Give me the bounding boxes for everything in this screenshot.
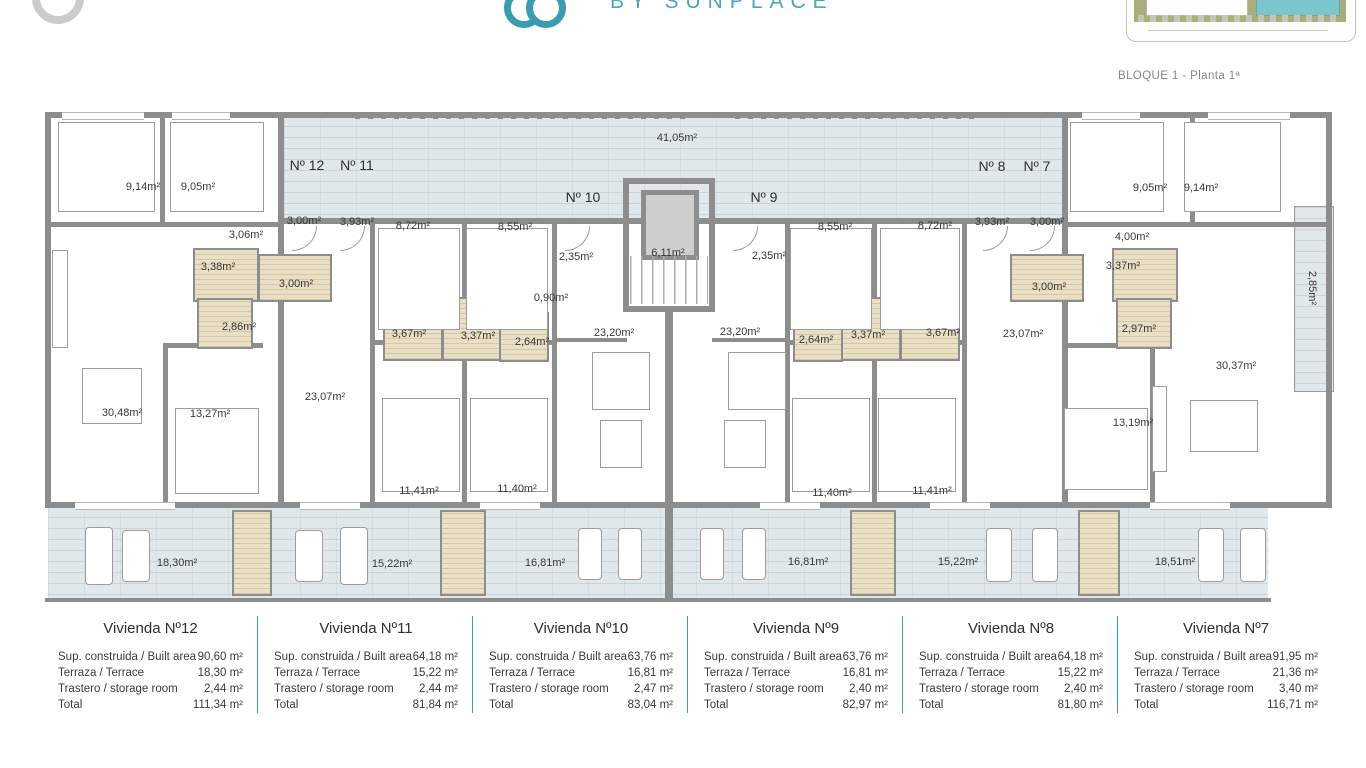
total-label: Total [704, 697, 728, 713]
storage-label: Trastero / storage room [704, 681, 824, 697]
terrace-label: Terraza / Terrace [919, 665, 1005, 681]
room-area-label: 18,51m² [1155, 556, 1195, 568]
table-row: Terraza / Terrace 21,36 m² [1134, 665, 1318, 681]
room-area-label: 13,27m² [190, 408, 230, 420]
sun-lounger [986, 528, 1012, 582]
built-area-label: Sup. construida / Built area [489, 649, 627, 665]
storage-value: 2,40 m² [849, 681, 888, 697]
storage-value: 2,44 m² [204, 681, 243, 697]
unit-summary-column: Vivienda Nº11 Sup. construida / Built ar… [257, 616, 472, 713]
door-arc [340, 226, 365, 251]
wall [45, 222, 278, 227]
room-area-label: 6,11m² [651, 247, 684, 259]
wall [1062, 222, 1332, 227]
sun-lounger [1240, 528, 1266, 582]
table-row: Trastero / storage room 2,44 m² [58, 681, 243, 697]
sun-lounger [618, 528, 642, 580]
room-area-label: 4,00m² [1115, 231, 1149, 243]
unit-number-label: Nº 12 [290, 157, 325, 173]
floorplan-page: BY SUNPLACE BLOQUE 1 - Planta 1ª [0, 0, 1366, 768]
wall [1326, 112, 1332, 508]
terrace-label: Terraza / Terrace [274, 665, 360, 681]
unit-summary-column: Vivienda Nº9 Sup. construida / Built are… [687, 616, 902, 713]
built-area-value: 63,76 m² [628, 649, 673, 665]
sofa [592, 352, 650, 410]
stairs [630, 256, 708, 304]
stair-wall [623, 178, 629, 312]
total-label: Total [919, 697, 943, 713]
terrace-label: Terraza / Terrace [704, 665, 790, 681]
room-area-label: 3,00m² [1030, 216, 1064, 228]
room-area-label: 11,40m² [497, 483, 537, 495]
sun-lounger [1032, 528, 1058, 582]
wall [370, 218, 375, 502]
bed [1070, 122, 1164, 212]
unit-summary-title: Vivienda Nº10 [489, 620, 673, 637]
storage-value: 2,40 m² [1064, 681, 1103, 697]
window [62, 112, 144, 120]
total-value: 82,97 m² [843, 697, 888, 713]
window [1082, 112, 1140, 120]
built-area-label: Sup. construida / Built area [274, 649, 412, 665]
room-area-label: 3,67m² [926, 327, 960, 339]
wall [160, 112, 165, 224]
bathroom [1112, 248, 1178, 302]
table-row: Sup. construida / Built area 63,76 m² [489, 649, 673, 665]
window [300, 502, 360, 510]
table-row: Terraza / Terrace 15,22 m² [274, 665, 458, 681]
room-area-label: 3,37m² [851, 329, 885, 341]
bed [382, 398, 460, 492]
sofa [728, 352, 786, 410]
table-row: Sup. construida / Built area 91,95 m² [1134, 649, 1318, 665]
unit-summary-title: Vivienda Nº7 [1134, 620, 1318, 637]
room-area-label: 3,67m² [392, 328, 426, 340]
sun-lounger [742, 528, 766, 580]
table-row: Total 81,84 m² [274, 697, 458, 713]
door-arc [565, 226, 590, 251]
unit-summary-table: Vivienda Nº12 Sup. construida / Built ar… [42, 616, 1332, 713]
room-area-label: 9,05m² [181, 181, 215, 193]
table-row: Total 111,34 m² [58, 697, 243, 713]
unit-summary-column: Vivienda Nº8 Sup. construida / Built are… [902, 616, 1117, 713]
wall [45, 112, 51, 508]
table-row: Terraza / Terrace 18,30 m² [58, 665, 243, 681]
room-area-label: 2,35m² [752, 250, 786, 262]
room-area-label: 3,37m² [461, 330, 495, 342]
table-row: Terraza / Terrace 15,22 m² [919, 665, 1103, 681]
storage-label: Trastero / storage room [274, 681, 394, 697]
storage-value: 2,47 m² [634, 681, 673, 697]
total-label: Total [489, 697, 513, 713]
built-area-value: 64,18 m² [413, 649, 458, 665]
built-area-label: Sup. construida / Built area [919, 649, 1057, 665]
sofa [1152, 386, 1167, 472]
table-row: Total 83,04 m² [489, 697, 673, 713]
bed [470, 398, 548, 492]
unit-summary-title: Vivienda Nº9 [704, 620, 888, 637]
sun-lounger [85, 527, 113, 585]
sun-lounger [295, 530, 323, 582]
room-area-label: 11,41m² [912, 485, 952, 497]
room-area-label: 0,90m² [534, 292, 568, 304]
dining-table [1190, 400, 1258, 452]
table-row: Terraza / Terrace 16,81 m² [704, 665, 888, 681]
built-area-label: Sup. construida / Built area [58, 649, 196, 665]
terrace-label: Terraza / Terrace [489, 665, 575, 681]
room-area-label: 9,05m² [1133, 182, 1167, 194]
window [760, 502, 820, 510]
room-area-label: 2,97m² [1122, 323, 1156, 335]
total-label: Total [58, 697, 82, 713]
unit-summary-title: Vivienda Nº8 [919, 620, 1103, 637]
sofa [52, 250, 68, 348]
unit-number-label: Nº 7 [1024, 158, 1051, 174]
coffee-table [600, 420, 642, 468]
wall [872, 345, 877, 502]
unit-summary-title: Vivienda Nº12 [58, 620, 243, 637]
room-area-label: 8,72m² [396, 220, 430, 232]
table-row: Sup. construida / Built area 90,60 m² [58, 649, 243, 665]
room-area-label: 2,64m² [515, 336, 549, 348]
room-area-label: 8,55m² [818, 221, 852, 233]
storage-room [440, 510, 486, 596]
room-area-label: 18,30m² [157, 557, 197, 569]
storage-room [850, 510, 896, 596]
table-row: Sup. construida / Built area 64,18 m² [274, 649, 458, 665]
table-row: Total 116,71 m² [1134, 697, 1318, 713]
room-area-label: 2,86m² [222, 321, 256, 333]
terrace-label: Terraza / Terrace [58, 665, 144, 681]
storage-value: 3,40 m² [1279, 681, 1318, 697]
room-area-label: 11,40m² [812, 487, 852, 499]
table-row: Sup. construida / Built area 63,76 m² [704, 649, 888, 665]
room-area-label: 15,22m² [938, 556, 978, 568]
room-area-label: 8,55m² [498, 221, 532, 233]
unit-number-label: Nº 9 [751, 189, 778, 205]
room-area-label: 3,00m² [1032, 281, 1066, 293]
room-area-label: 23,20m² [720, 326, 760, 338]
unit-summary-column: Vivienda Nº7 Sup. construida / Built are… [1117, 616, 1332, 713]
built-area-label: Sup. construida / Built area [704, 649, 842, 665]
sun-lounger [578, 528, 602, 580]
built-area-value: 63,76 m² [843, 649, 888, 665]
wall [278, 112, 284, 224]
table-row: Terraza / Terrace 16,81 m² [489, 665, 673, 681]
bed [878, 398, 956, 492]
table-row: Trastero / storage room 2,44 m² [274, 681, 458, 697]
wall [962, 218, 967, 502]
bed [792, 398, 870, 492]
table-row: Trastero / storage room 2,47 m² [489, 681, 673, 697]
window [1150, 502, 1230, 510]
door-arc [983, 226, 1008, 251]
bed [790, 228, 872, 330]
room-area-label: 13,19m² [1113, 417, 1153, 429]
terrace-value: 21,36 m² [1273, 665, 1318, 681]
terrace-value: 15,22 m² [1058, 665, 1103, 681]
sun-lounger [1198, 528, 1224, 582]
room-area-label: 23,20m² [594, 327, 634, 339]
unit-number-label: Nº 11 [340, 157, 374, 173]
bed [175, 408, 259, 494]
room-area-label: 3,93m² [340, 216, 374, 228]
room-area-label: 11,41m² [399, 485, 439, 497]
coffee-table [724, 420, 766, 468]
total-value: 111,34 m² [193, 697, 243, 713]
room-area-label: 2,35m² [559, 251, 593, 263]
terrace-label: Terraza / Terrace [1134, 665, 1220, 681]
room-area-label: 23,07m² [305, 391, 345, 403]
door-arc [1030, 226, 1055, 251]
total-value: 81,84 m² [413, 697, 458, 713]
unit-summary-column: Vivienda Nº12 Sup. construida / Built ar… [42, 616, 257, 713]
terrace-value: 18,30 m² [198, 665, 243, 681]
table-row: Trastero / storage room 2,40 m² [919, 681, 1103, 697]
bed [880, 228, 960, 330]
wall [45, 502, 1332, 508]
built-area-value: 91,95 m² [1273, 649, 1318, 665]
stair-wall [709, 178, 715, 312]
room-area-label: 3,00m² [287, 215, 321, 227]
total-value: 81,80 m² [1058, 697, 1103, 713]
room-area-label: 15,22m² [372, 558, 412, 570]
bathroom [1010, 254, 1084, 302]
room-area-label: 3,06m² [229, 229, 263, 241]
window [480, 502, 540, 510]
terrace-value: 16,81 m² [843, 665, 888, 681]
total-label: Total [1134, 697, 1158, 713]
terrace-value: 16,81 m² [628, 665, 673, 681]
unit-summary-column: Vivienda Nº10 Sup. construida / Built ar… [472, 616, 687, 713]
unit-number-label: Nº 8 [979, 158, 1006, 174]
door-arc [733, 226, 758, 251]
storage-room [1078, 510, 1120, 596]
room-area-label: 9,14m² [1184, 182, 1218, 194]
wall [1062, 112, 1068, 224]
window [75, 502, 175, 510]
room-area-label: 41,05m² [657, 132, 697, 144]
side-terrace-label: 2,85m² [1306, 271, 1318, 305]
room-area-label: 3,38m² [201, 261, 235, 273]
unit-number-label: Nº 10 [566, 189, 601, 205]
storage-label: Trastero / storage room [58, 681, 178, 697]
built-area-value: 64,18 m² [1058, 649, 1103, 665]
total-value: 116,71 m² [1267, 697, 1318, 713]
room-area-label: 3,37m² [1106, 260, 1140, 272]
stair-wall [623, 178, 715, 184]
table-row: Total 82,97 m² [704, 697, 888, 713]
storage-label: Trastero / storage room [919, 681, 1039, 697]
wall [665, 312, 673, 508]
room-area-label: 8,72m² [918, 220, 952, 232]
room-area-label: 3,93m² [975, 216, 1009, 228]
bathroom [193, 248, 259, 302]
terrace-value: 15,22 m² [413, 665, 458, 681]
total-value: 83,04 m² [628, 697, 673, 713]
built-area-label: Sup. construida / Built area [1134, 649, 1272, 665]
terrace-edge [45, 598, 1271, 602]
storage-label: Trastero / storage room [489, 681, 609, 697]
room-area-label: 3,00m² [279, 278, 313, 290]
bed [378, 228, 460, 330]
bed [1184, 122, 1281, 212]
wall [712, 338, 787, 342]
built-area-value: 90,60 m² [198, 649, 243, 665]
window [930, 502, 990, 510]
table-row: Total 81,80 m² [919, 697, 1103, 713]
unit-summary-title: Vivienda Nº11 [274, 620, 458, 637]
room-area-label: 2,64m² [799, 334, 833, 346]
room-area-label: 30,48m² [102, 407, 142, 419]
table-row: Trastero / storage room 3,40 m² [1134, 681, 1318, 697]
total-label: Total [274, 697, 298, 713]
storage-label: Trastero / storage room [1134, 681, 1254, 697]
terrace-divider [665, 506, 673, 598]
wall [552, 218, 557, 502]
wall [462, 345, 467, 502]
window [172, 112, 230, 120]
room-area-label: 16,81m² [525, 557, 565, 569]
room-area-label: 9,14m² [126, 181, 160, 193]
door-arc [292, 226, 317, 251]
room-area-label: 16,81m² [788, 556, 828, 568]
table-row: Sup. construida / Built area 64,18 m² [919, 649, 1103, 665]
window [1208, 112, 1290, 120]
bed [466, 228, 548, 330]
storage-value: 2,44 m² [419, 681, 458, 697]
bed [58, 122, 155, 212]
room-area-label: 30,37m² [1216, 360, 1256, 372]
wall [163, 343, 168, 502]
sun-lounger [122, 530, 150, 582]
storage-room [232, 510, 272, 596]
room-area-label: 23,07m² [1003, 328, 1043, 340]
sun-lounger [340, 527, 368, 585]
sun-lounger [700, 528, 724, 580]
table-row: Trastero / storage room 2,40 m² [704, 681, 888, 697]
bed [170, 122, 264, 212]
